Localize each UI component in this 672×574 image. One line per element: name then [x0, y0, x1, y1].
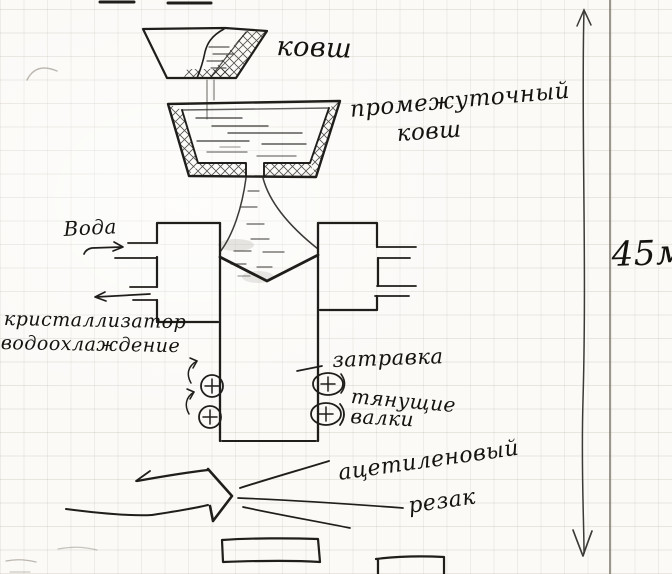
stream-ladle-to-tundish: [207, 80, 214, 119]
ladle-bottom-hatch: [184, 69, 233, 78]
tundish-liquid-dashes: [196, 118, 306, 156]
torch-arrowhead: [208, 469, 232, 521]
tundish-shape: [168, 101, 340, 177]
scan-artifact-top-marks: [100, 2, 211, 3]
cut-billet: [222, 538, 320, 562]
roller-left-bottom: [186, 389, 221, 428]
label-crystallizer-line1: кристаллизатор: [4, 310, 187, 332]
casting-machine-sketch: [0, 0, 672, 574]
height-dimension-arrow: [573, 10, 592, 556]
mold-left-block: [115, 223, 220, 322]
label-rollers-line2: валки: [350, 406, 415, 429]
tundish-bottom-left-hatch: [192, 163, 246, 176]
pulling-rollers: [186, 358, 344, 428]
arrowhead-down-icon: [573, 530, 592, 556]
strand-column: [220, 223, 318, 441]
label-dummy-bar: затравка: [332, 346, 444, 371]
notebook-sketch-page: ковш промежуточный ковш Вода кристаллиза…: [0, 0, 672, 574]
label-ladle: ковш: [276, 33, 353, 63]
ladle-shape: [143, 28, 267, 78]
roller-right-bottom: [311, 403, 344, 425]
pouring-stream-bell: [218, 178, 318, 283]
water-in-arrow: [84, 242, 123, 254]
pencil-scribbles-bottom-left: [6, 547, 97, 572]
label-crystallizer-line2: водоохлаждение: [1, 334, 181, 356]
tundish-bottom-right-hatch: [264, 163, 315, 176]
pencil-arc-mark: [27, 68, 57, 80]
cut-billet-partial: [376, 556, 444, 574]
mold-right-block: [318, 223, 416, 310]
label-tundish-line2: ковш: [396, 118, 462, 145]
pencil-smudge: [218, 239, 254, 251]
label-water: Вода: [63, 216, 117, 239]
water-pipes-left: [115, 243, 157, 300]
water-pipes-right: [375, 247, 416, 296]
bell-liquid-dashes: [231, 191, 284, 276]
label-height-dimension: 45м: [611, 235, 672, 272]
